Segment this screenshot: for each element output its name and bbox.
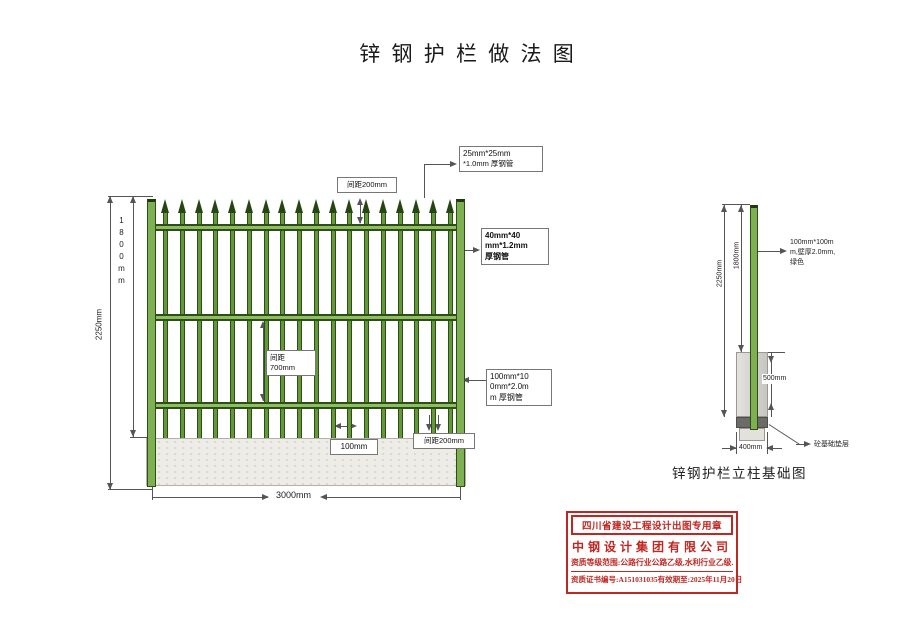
label-cushion: 砼基础垫层 <box>814 440 849 450</box>
arrowhead-icon <box>130 430 136 437</box>
dim-label-base-width: 400mm <box>739 443 762 453</box>
arrowhead-icon <box>804 441 811 447</box>
dim-ext-bottom <box>108 489 153 490</box>
label-post-size: 100mm*10 0mm*2.0m m 厚钢管 <box>486 369 552 406</box>
dim-line-above-ground <box>741 205 742 352</box>
leader-line <box>466 380 486 381</box>
label-rail-size-line2: mm*1.2mm <box>485 241 545 251</box>
arrowhead-icon <box>768 356 774 363</box>
arrowhead-icon <box>738 205 744 212</box>
arrowhead-icon <box>450 161 457 167</box>
label-rail-size-line3: 厚钢管 <box>485 252 545 262</box>
label-picket-size-line1: 25mm*25mm <box>463 149 539 159</box>
dim-line-total-height <box>110 197 111 490</box>
drawing-canvas: 锌 钢 护 栏 做 法 图 2250mm 1800mm 3000mm 25mm*… <box>0 0 900 626</box>
leader-line <box>769 424 800 444</box>
label-mid-spacing-line1: 间距 <box>270 353 312 363</box>
label-bottom-spacing: 间距200mm <box>413 433 475 449</box>
dim-line-span-left <box>152 497 268 498</box>
label-picket-size: 25mm*25mm *1.0mm 厚钢管 <box>459 146 543 172</box>
label-post-size-line2: 0mm*2.0m <box>490 382 548 392</box>
drawing-title: 锌 钢 护 栏 做 法 图 <box>318 38 618 68</box>
fence-rail-bottom <box>148 402 465 409</box>
label-picket-size-line2: *1.0mm 厚钢管 <box>463 159 539 169</box>
label-detail-post-spec-line3: 绿色 <box>790 258 868 268</box>
dim-label-panel-height: 1800mm <box>117 216 126 288</box>
arrowhead-icon <box>320 494 327 500</box>
stamp-header: 四川省建设工程设计出图专用章 <box>571 515 733 535</box>
arrowhead-icon <box>768 403 774 410</box>
label-picket-width: 100mm <box>330 439 378 455</box>
label-detail-post-spec-line1: 100mm*100m <box>790 238 868 248</box>
fence-post-left <box>147 199 156 487</box>
dim-line-span-right <box>324 497 461 498</box>
label-rail-size-line1: 40mm*40 <box>485 231 545 241</box>
arrowhead-icon <box>721 205 727 212</box>
dim-line-panel-height <box>133 197 134 437</box>
leader-line <box>424 164 425 198</box>
detail-caption: 锌钢护栏立柱基础图 <box>672 462 852 482</box>
arrowhead-icon <box>780 248 787 254</box>
arrowhead-icon <box>738 345 744 352</box>
dim-label-span: 3000mm <box>274 490 313 500</box>
dim-label-detail-total: 2250mm <box>717 253 724 295</box>
detail-post <box>750 205 758 430</box>
label-top-spacing: 间距200mm <box>337 177 397 193</box>
stamp-bottom-row: 资质证书编号:A151031035 有效期至:2025年11月20日 <box>571 571 733 585</box>
fence-rail-top <box>148 224 465 231</box>
dim-label-embed: 500mm <box>762 374 787 384</box>
arrowhead-icon <box>473 247 480 253</box>
label-detail-post-spec: 100mm*100m m,壁厚2.0mm, 绿色 <box>790 238 868 267</box>
label-mid-spacing-line2: 700mm <box>270 363 312 373</box>
label-post-size-line3: m 厚钢管 <box>490 393 548 403</box>
stamp-company: 中钢设计集团有限公司 <box>571 538 733 555</box>
approval-stamp: 四川省建设工程设计出图专用章 中钢设计集团有限公司 资质等级范围:公路行业公路乙… <box>566 511 738 594</box>
dim-ext-right <box>460 487 461 500</box>
arrowhead-icon <box>130 196 136 203</box>
label-rail-size: 40mm*40 mm*1.2mm 厚钢管 <box>481 228 549 265</box>
arrowhead-icon <box>766 445 773 451</box>
fence-rail-middle <box>148 314 465 321</box>
arrowhead-icon <box>262 494 269 500</box>
dim-line-detail-total <box>724 205 725 417</box>
arrowhead-icon <box>721 410 727 417</box>
label-post-size-line1: 100mm*10 <box>490 372 548 382</box>
stamp-cert-no: 资质证书编号:A151031035 <box>571 574 658 585</box>
arrowhead-icon <box>107 196 113 203</box>
label-mid-spacing: 间距 700mm <box>266 350 316 376</box>
dim-ext-left <box>152 487 153 500</box>
stamp-validity: 有效期至:2025年11月20日 <box>658 574 743 585</box>
arrowhead-icon <box>730 445 737 451</box>
dim-label-above-ground: 1800mm <box>734 235 741 277</box>
dim-label-total-height: 2250mm <box>95 302 104 348</box>
stamp-qualification: 资质等级范围:公路行业公路乙级,水利行业乙级. <box>571 557 733 568</box>
label-detail-post-spec-line2: m,壁厚2.0mm, <box>790 248 868 258</box>
